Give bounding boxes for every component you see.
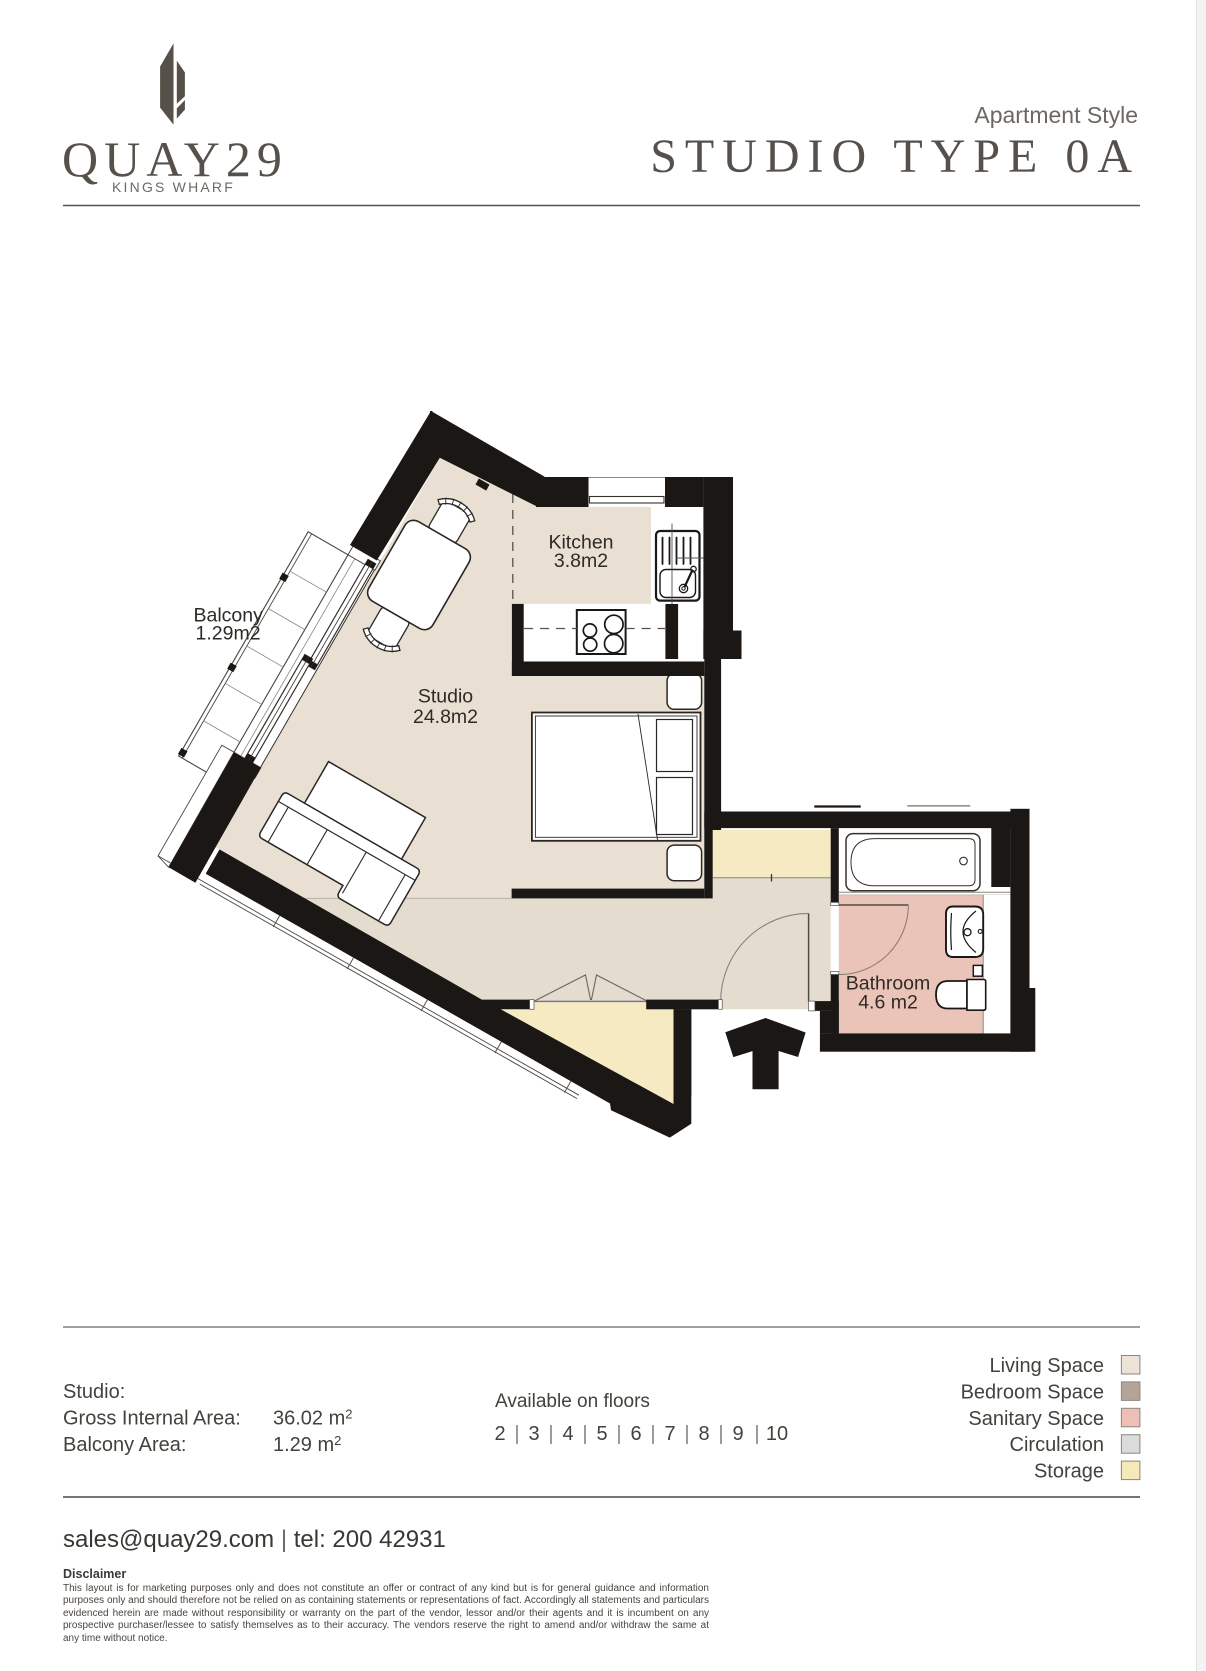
svg-text:Storage: Storage <box>1034 1461 1104 1483</box>
svg-text:Disclaimer: Disclaimer <box>63 1567 126 1581</box>
svg-text:Living Space: Living Space <box>989 1355 1104 1377</box>
svg-text:2|3|4|5|6|7|8|9|10: 2|3|4|5|6|7|8|9|10 <box>494 1423 788 1445</box>
svg-text:Gross Internal Area:: Gross Internal Area: <box>63 1407 241 1429</box>
svg-text:Bedroom Space: Bedroom Space <box>961 1381 1104 1403</box>
svg-text:3.8m2: 3.8m2 <box>554 550 608 572</box>
svg-text:24.8m2: 24.8m2 <box>413 706 478 728</box>
svg-text:Apartment Style: Apartment Style <box>974 102 1138 128</box>
svg-text:sales@quay29.com | tel: 200 42: sales@quay29.com | tel: 200 42931 <box>63 1526 446 1553</box>
svg-text:1.29 m2: 1.29 m2 <box>273 1433 341 1456</box>
svg-text:Available on floors: Available on floors <box>495 1391 650 1412</box>
svg-text:Balcony Area:: Balcony Area: <box>63 1434 186 1456</box>
svg-text:Sanitary Space: Sanitary Space <box>968 1408 1104 1430</box>
svg-text:Studio:: Studio: <box>63 1381 125 1403</box>
svg-text:STUDIO TYPE 0A: STUDIO TYPE 0A <box>650 130 1140 183</box>
svg-text:Studio: Studio <box>418 686 473 708</box>
svg-text:4.6 m2: 4.6 m2 <box>858 992 918 1014</box>
svg-text:Circulation: Circulation <box>1010 1434 1104 1456</box>
svg-text:36.02 m2: 36.02 m2 <box>273 1406 353 1429</box>
svg-text:KINGS WHARF: KINGS WHARF <box>112 179 235 195</box>
svg-text:1.29m2: 1.29m2 <box>196 622 261 644</box>
